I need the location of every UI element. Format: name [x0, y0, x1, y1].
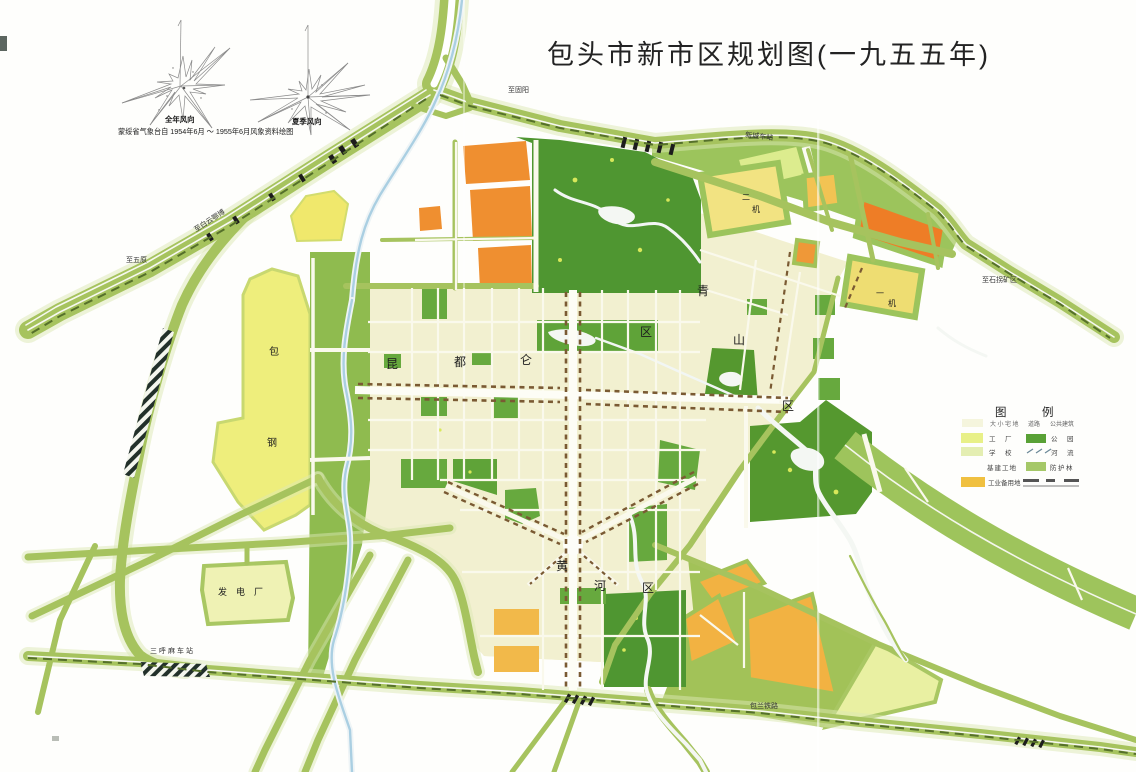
svg-text:一: 一: [876, 289, 884, 298]
svg-text:蒙绥省气象台自 1954年6月 ～ 1955年6月风象资料绘: 蒙绥省气象台自 1954年6月 ～ 1955年6月风象资料绘图: [118, 127, 293, 136]
svg-text:道路: 道路: [1028, 420, 1040, 428]
svg-text:包: 包: [269, 345, 279, 358]
svg-text:大小宅地: 大小宅地: [990, 420, 1020, 428]
svg-text:例: 例: [1042, 405, 1054, 419]
svg-text:至五原: 至五原: [126, 256, 147, 264]
svg-text:仑: 仑: [520, 353, 532, 367]
svg-text:园: 园: [1067, 435, 1074, 443]
svg-text:全年风向: 全年风向: [164, 115, 195, 124]
svg-text:包兰铁路: 包兰铁路: [750, 701, 778, 710]
svg-text:河: 河: [594, 579, 606, 593]
svg-text:二: 二: [742, 193, 750, 202]
svg-text:区: 区: [640, 325, 652, 339]
svg-text:厂: 厂: [1005, 435, 1012, 443]
svg-text:至固阳: 至固阳: [508, 85, 529, 94]
svg-text:校: 校: [1005, 448, 1012, 457]
svg-text:包头市新市区规划图(一九五五年): 包头市新市区规划图(一九五五年): [547, 40, 991, 70]
svg-text:工业备用地: 工业备用地: [988, 478, 1021, 487]
svg-text:图: 图: [995, 406, 1007, 419]
svg-text:机: 机: [888, 298, 896, 308]
svg-text:都: 都: [454, 355, 466, 369]
svg-text:机: 机: [752, 204, 760, 214]
svg-text:公: 公: [1051, 436, 1058, 443]
svg-text:三呼麻车站: 三呼麻车站: [150, 646, 195, 655]
svg-text:至石拐矿区: 至石拐矿区: [982, 275, 1017, 284]
svg-text:工: 工: [989, 436, 996, 443]
svg-text:夏季风向: 夏季风向: [291, 117, 322, 126]
svg-text:流: 流: [1067, 448, 1074, 457]
svg-text:河: 河: [1051, 449, 1058, 457]
svg-text:区: 区: [782, 399, 794, 413]
svg-text:基建工地: 基建工地: [987, 463, 1017, 472]
svg-text:防护林: 防护林: [1050, 463, 1074, 472]
svg-text:昆: 昆: [386, 357, 398, 371]
svg-text:公共建筑: 公共建筑: [1050, 420, 1074, 428]
svg-text:学: 学: [989, 448, 996, 457]
svg-text:区: 区: [642, 581, 654, 595]
svg-text:青: 青: [697, 284, 709, 298]
svg-text:钢: 钢: [267, 436, 277, 449]
svg-text:发电厂: 发电厂: [218, 586, 272, 597]
svg-text:黄: 黄: [556, 559, 568, 573]
svg-text:山: 山: [733, 333, 745, 347]
